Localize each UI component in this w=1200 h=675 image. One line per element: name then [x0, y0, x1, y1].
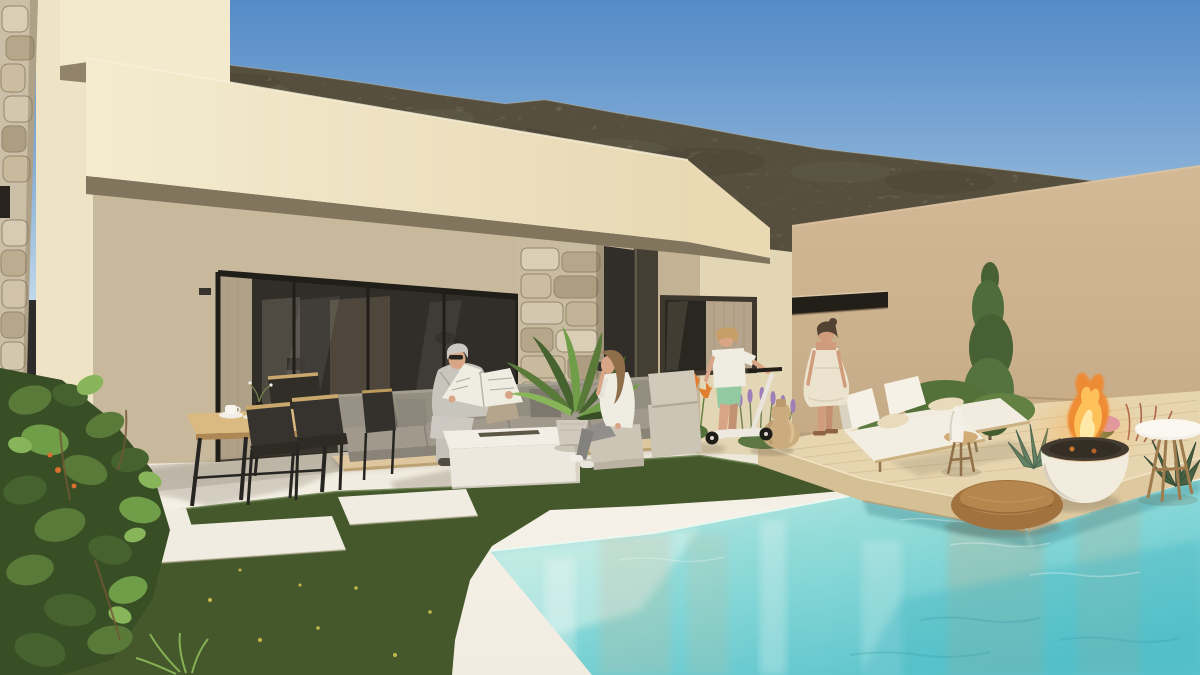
- sunlight-haze: [0, 0, 1200, 675]
- rendered-scene: [0, 0, 1200, 675]
- villa-rendering: [0, 0, 1200, 675]
